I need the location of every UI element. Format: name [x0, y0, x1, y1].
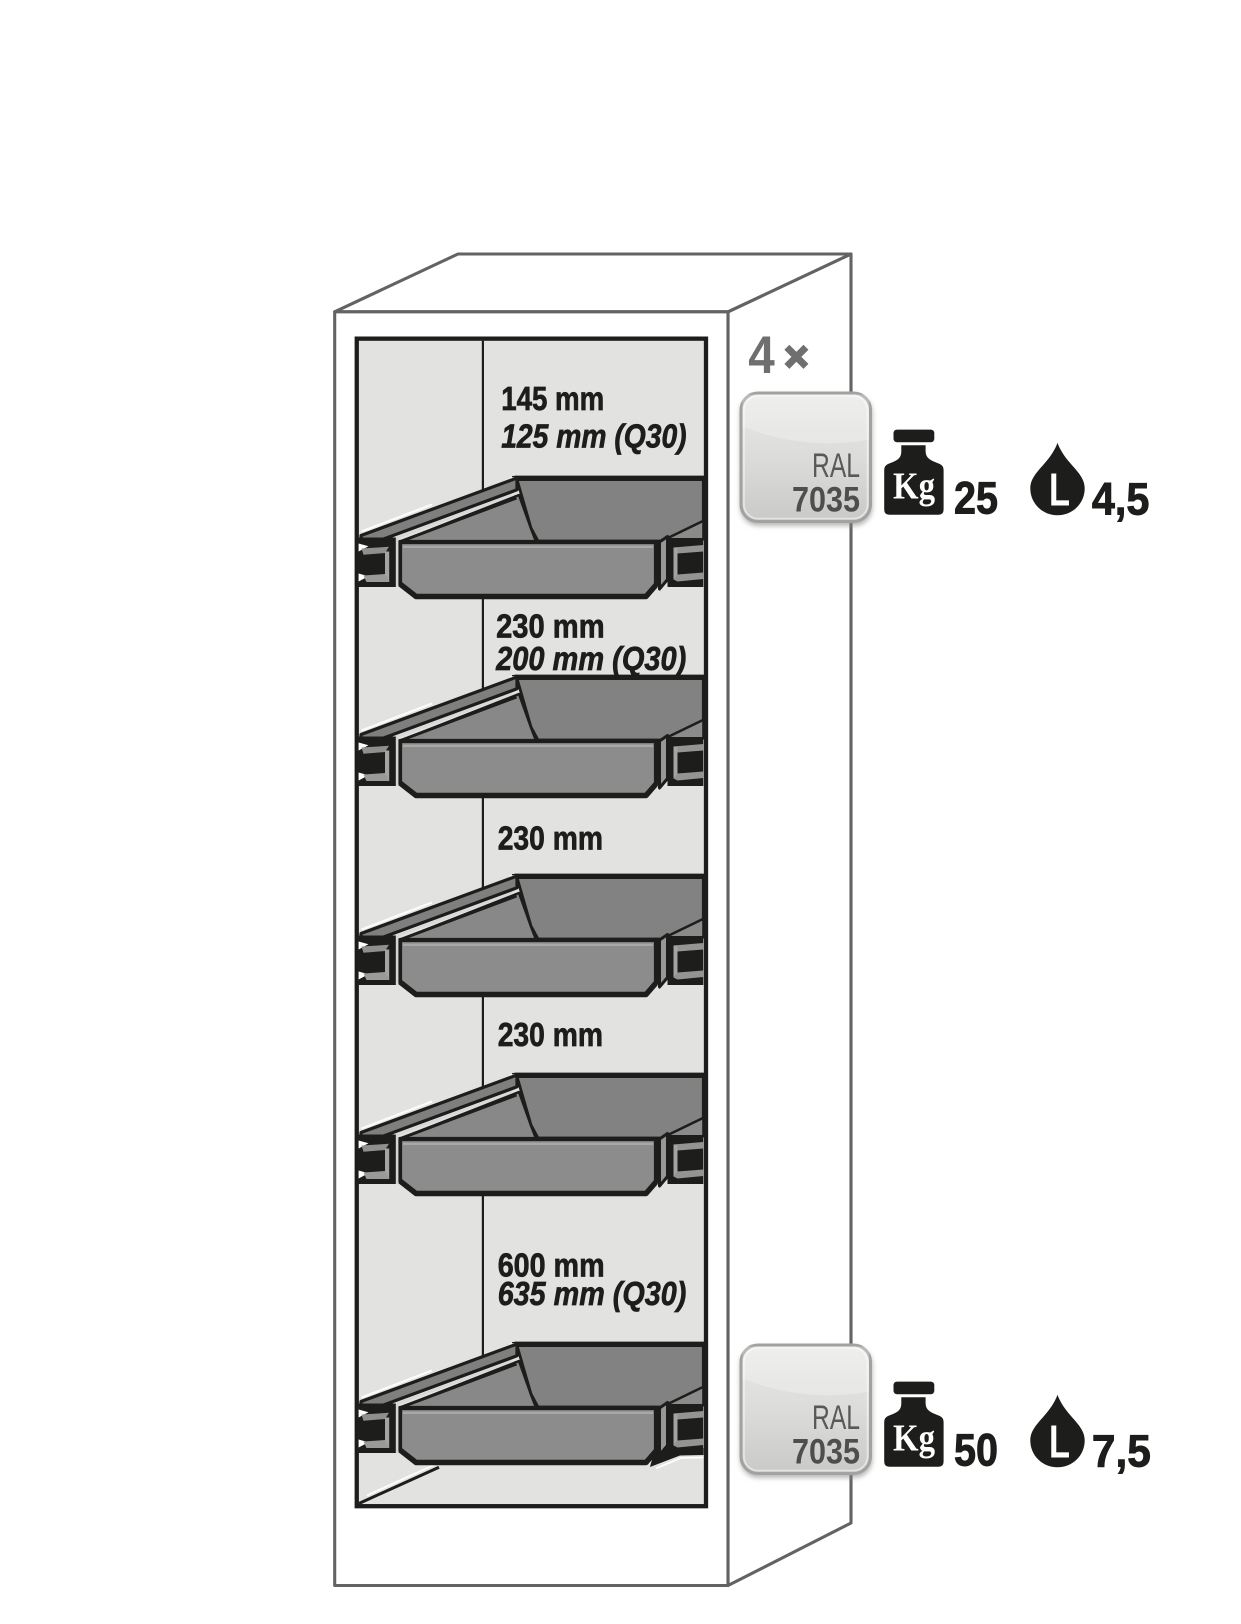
- svg-text:25: 25: [954, 473, 998, 524]
- svg-text:230 mm: 230 mm: [498, 820, 603, 857]
- svg-text:125 mm (Q30): 125 mm (Q30): [501, 419, 686, 456]
- svg-text:4,5: 4,5: [1092, 474, 1150, 525]
- svg-text:200 mm (Q30): 200 mm (Q30): [495, 641, 686, 678]
- svg-text:50: 50: [954, 1425, 998, 1476]
- svg-text:230 mm: 230 mm: [498, 1017, 603, 1054]
- svg-text:230 mm: 230 mm: [496, 609, 604, 646]
- svg-text:4: 4: [748, 326, 775, 385]
- svg-text:145 mm: 145 mm: [501, 381, 604, 418]
- svg-text:7,5: 7,5: [1092, 1426, 1151, 1477]
- svg-text:635 mm (Q30): 635 mm (Q30): [498, 1276, 687, 1313]
